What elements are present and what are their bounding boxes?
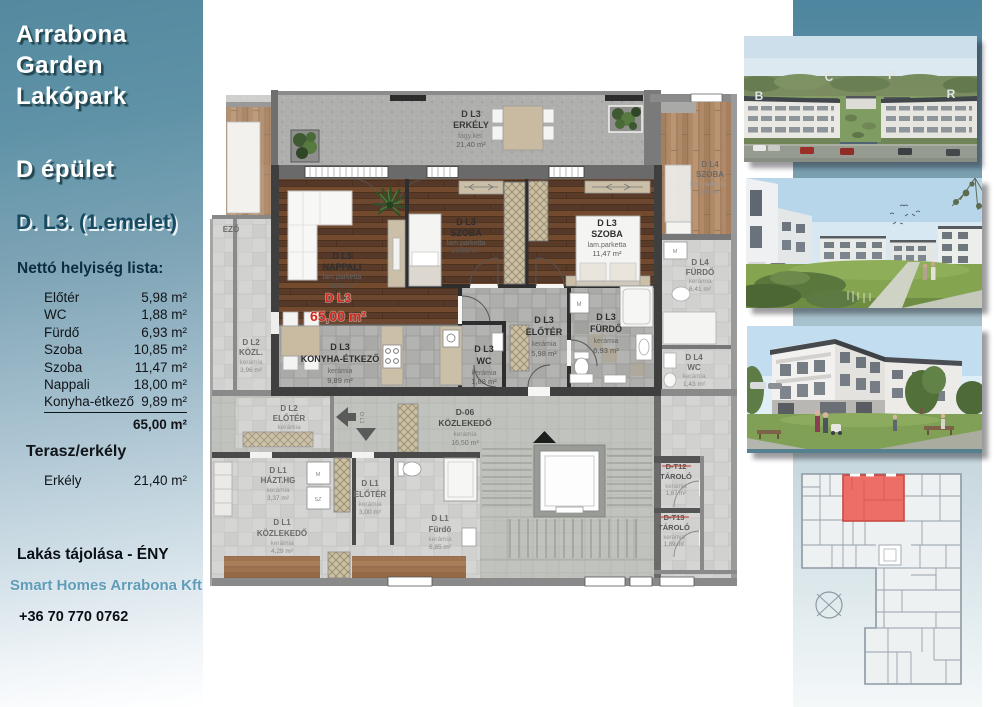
svg-text:kerámia: kerámia xyxy=(328,368,353,375)
svg-text:6,85 m²: 6,85 m² xyxy=(429,544,452,551)
svg-text:18,00 m²: 18,00 m² xyxy=(327,281,357,290)
svg-text:6,41 m²: 6,41 m² xyxy=(689,286,712,293)
svg-text:D L3: D L3 xyxy=(534,315,554,325)
svg-text:D L3: D L3 xyxy=(597,218,617,228)
svg-text:9,89 m²: 9,89 m² xyxy=(327,376,353,385)
svg-text:kerámia: kerámia xyxy=(277,424,301,431)
svg-text:Fürdő: Fürdő xyxy=(429,525,452,534)
svg-text:D-06: D-06 xyxy=(456,407,475,417)
svg-text:1,89 m²: 1,89 m² xyxy=(664,542,684,548)
svg-text:kerámia: kerámia xyxy=(453,431,477,438)
svg-text:NAPPALI: NAPPALI xyxy=(323,262,362,272)
svg-text:D L3: D L3 xyxy=(456,217,476,227)
svg-text:kerámia: kerámia xyxy=(532,341,557,348)
svg-text:1,88 m²: 1,88 m² xyxy=(471,377,497,386)
svg-text:kerámia: kerámia xyxy=(428,536,452,543)
svg-text:kerámia: kerámia xyxy=(266,487,290,494)
svg-text:TÁROLÓ: TÁROLÓ xyxy=(658,523,690,532)
svg-text:lam.parketta: lam.parketta xyxy=(588,242,627,249)
svg-text:D L1: D L1 xyxy=(273,518,291,527)
svg-text:kerámia: kerámia xyxy=(358,501,382,508)
svg-text:SZOBA: SZOBA xyxy=(450,228,482,238)
svg-text:D L1: D L1 xyxy=(361,479,379,488)
svg-text:EZŐ: EZŐ xyxy=(223,225,239,234)
svg-text:ELŐTÉR: ELŐTÉR xyxy=(354,490,387,499)
svg-text:lam.parketta: lam.parketta xyxy=(323,274,362,281)
svg-text:M: M xyxy=(577,302,582,308)
svg-text:6,93 m²: 6,93 m² xyxy=(593,346,619,355)
svg-text:21,40 m²: 21,40 m² xyxy=(456,140,486,149)
svg-text:WC: WC xyxy=(687,363,701,372)
svg-text:FÜRDŐ: FÜRDŐ xyxy=(686,268,714,277)
svg-text:fagy.ker.: fagy.ker. xyxy=(458,133,484,140)
svg-text:D L1: D L1 xyxy=(269,466,287,475)
svg-text:D L3: D L3 xyxy=(325,291,351,305)
svg-text:3,00 m²: 3,00 m² xyxy=(359,509,382,516)
svg-text:R: R xyxy=(947,87,956,101)
svg-text:C: C xyxy=(825,70,834,84)
svg-text:D L3: D L3 xyxy=(461,109,481,119)
svg-text:D L3: D L3 xyxy=(330,342,350,352)
svg-text:kerámia: kerámia xyxy=(472,370,497,377)
svg-text:ERKÉLY: ERKÉLY xyxy=(453,120,489,130)
svg-text:5,98 m²: 5,98 m² xyxy=(531,349,557,358)
svg-text:3,37 m²: 3,37 m² xyxy=(267,495,290,502)
svg-text:D L3: D L3 xyxy=(474,344,494,354)
svg-text:KÖZL.: KÖZL. xyxy=(239,348,263,357)
svg-text:D L4: D L4 xyxy=(701,160,719,169)
svg-text:D L4: D L4 xyxy=(691,258,709,267)
svg-text:1,43 m²: 1,43 m² xyxy=(683,381,706,388)
svg-text:D-T12: D-T12 xyxy=(666,462,687,471)
svg-text:D L1: D L1 xyxy=(358,412,364,424)
svg-text:kerámia: kerámia xyxy=(688,278,712,285)
svg-text:KÖZLEKEDŐ: KÖZLEKEDŐ xyxy=(438,417,492,428)
svg-text:TÁROLÓ: TÁROLÓ xyxy=(660,472,692,481)
svg-text:SZOBA: SZOBA xyxy=(591,229,623,239)
svg-text:16,50 m²: 16,50 m² xyxy=(451,440,479,447)
svg-text:D L3: D L3 xyxy=(596,312,616,322)
svg-text:ELŐTÉR: ELŐTÉR xyxy=(273,414,306,423)
svg-text:M: M xyxy=(673,249,678,255)
svg-text:FÜRDŐ: FÜRDŐ xyxy=(590,323,622,334)
svg-text:3,96 m²: 3,96 m² xyxy=(240,367,263,374)
svg-text:D L2: D L2 xyxy=(280,404,298,413)
svg-text:D-T13: D-T13 xyxy=(664,513,685,522)
svg-text:SZ: SZ xyxy=(314,497,322,503)
svg-text:M: M xyxy=(316,472,321,478)
svg-text:65,00 m²: 65,00 m² xyxy=(310,308,366,324)
svg-text:9,42 m²: 9,42 m² xyxy=(697,189,720,196)
svg-text:lam.parketta: lam.parketta xyxy=(690,181,726,188)
svg-text:kerámia: kerámia xyxy=(682,373,706,380)
svg-text:10,85 m²: 10,85 m² xyxy=(451,246,481,255)
svg-text:D L2: D L2 xyxy=(242,338,260,347)
svg-text:kerámia: kerámia xyxy=(270,540,294,547)
svg-text:D L1: D L1 xyxy=(431,514,449,523)
svg-text:kerámia: kerámia xyxy=(239,359,263,366)
svg-text:4,29 m²: 4,29 m² xyxy=(271,548,294,555)
svg-text:P: P xyxy=(888,68,896,82)
svg-text:HÁZT.HG: HÁZT.HG xyxy=(261,476,296,485)
svg-text:SZOBA: SZOBA xyxy=(696,170,724,179)
svg-text:ELŐTÉR: ELŐTÉR xyxy=(526,326,563,337)
svg-text:D L4: D L4 xyxy=(685,353,703,362)
svg-text:kerámia: kerámia xyxy=(594,338,619,345)
svg-text:B: B xyxy=(755,89,764,103)
svg-text:11,47 m²: 11,47 m² xyxy=(592,249,622,258)
svg-text:KÖZLEKEDŐ: KÖZLEKEDŐ xyxy=(257,529,307,538)
svg-text:WC: WC xyxy=(477,356,492,366)
svg-text:KONYHA-ÉTKEZŐ: KONYHA-ÉTKEZŐ xyxy=(301,353,380,364)
svg-text:D L3: D L3 xyxy=(332,251,352,261)
